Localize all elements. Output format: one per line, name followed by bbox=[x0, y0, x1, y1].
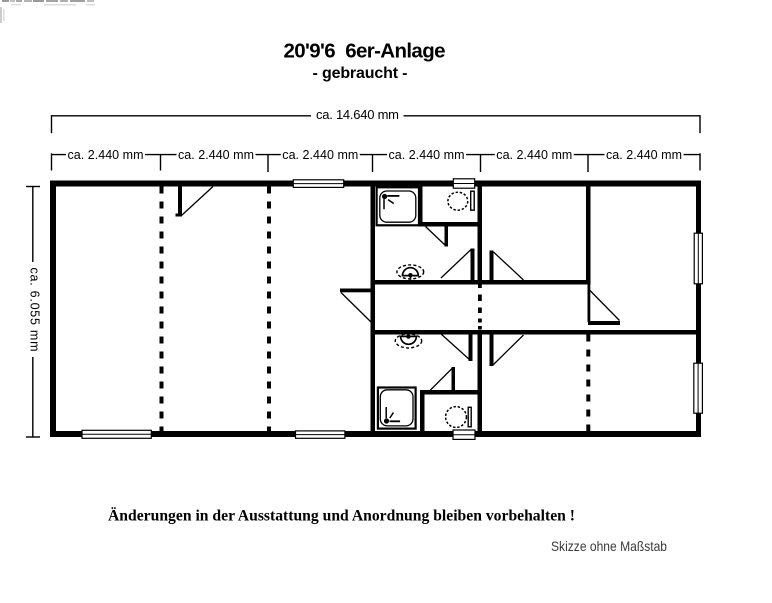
svg-text:ca. 2.440 mm: ca. 2.440 mm bbox=[496, 148, 572, 162]
svg-text:20'9'6 6er-Anlage: 20'9'6 6er-Anlage bbox=[284, 40, 446, 63]
svg-text:ca. 14.640 mm: ca. 14.640 mm bbox=[316, 107, 399, 122]
svg-text:ca. 2.440 mm: ca. 2.440 mm bbox=[68, 148, 144, 162]
svg-text:ca. 2.440 mm: ca. 2.440 mm bbox=[178, 148, 254, 162]
svg-text:ca. 2.440 mm: ca. 2.440 mm bbox=[282, 148, 358, 162]
svg-text:Änderungen in der Ausstattung: Änderungen in der Ausstattung und Anordn… bbox=[108, 506, 575, 524]
svg-text:- gebraucht -: - gebraucht - bbox=[313, 65, 408, 82]
svg-text:ca. 2.440 mm: ca. 2.440 mm bbox=[606, 148, 682, 162]
svg-text:ca. 2.440 mm: ca. 2.440 mm bbox=[389, 148, 465, 162]
svg-text:Skizze ohne Maßstab: Skizze ohne Maßstab bbox=[551, 538, 667, 554]
svg-text:ca. 6.055 mm: ca. 6.055 mm bbox=[28, 268, 42, 352]
